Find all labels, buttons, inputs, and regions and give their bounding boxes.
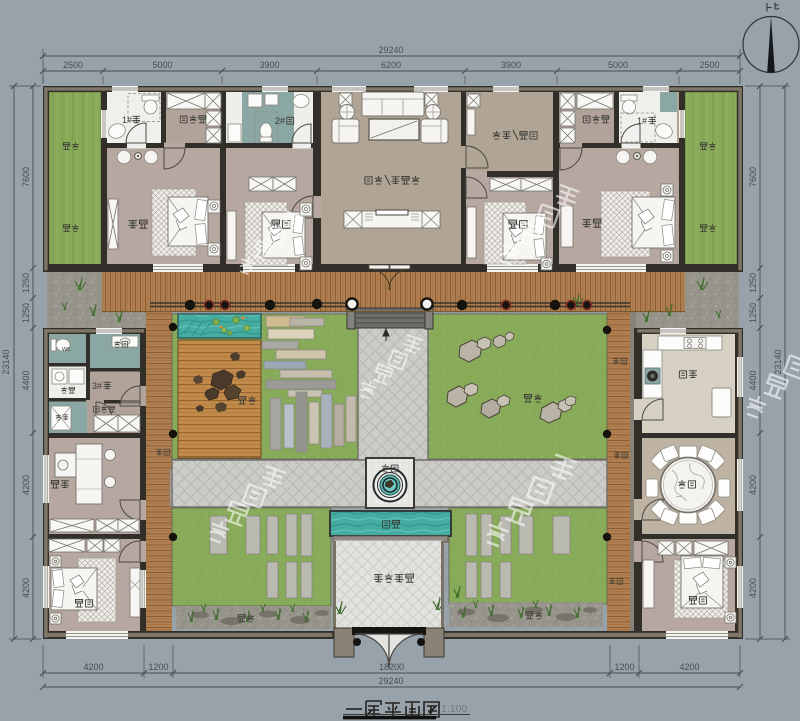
svg-text:1200: 1200 [148,662,168,672]
svg-text:4200: 4200 [748,578,758,598]
svg-text:3#: 3# [92,381,102,391]
svg-text:1200: 1200 [614,662,634,672]
svg-text:7600: 7600 [748,167,758,187]
svg-text:1250: 1250 [21,303,31,323]
svg-text:5000: 5000 [152,60,172,70]
svg-text:7600: 7600 [21,167,31,187]
svg-text:5000: 5000 [608,60,628,70]
svg-text:4200: 4200 [21,578,31,598]
svg-text:23140: 23140 [1,349,11,374]
svg-text:29240: 29240 [378,676,403,686]
svg-text:23140: 23140 [773,349,783,374]
svg-text:4200: 4200 [748,475,758,495]
svg-text:6200: 6200 [381,60,401,70]
svg-text:4400: 4400 [21,370,31,390]
svg-text:29240: 29240 [378,45,403,55]
svg-text:wc: wc [61,346,71,353]
svg-text:4200: 4200 [21,475,31,495]
svg-text:1250: 1250 [21,273,31,293]
svg-text:3900: 3900 [259,60,279,70]
svg-text:1250: 1250 [748,273,758,293]
svg-text:2500: 2500 [699,60,719,70]
svg-text:1#: 1# [637,116,647,126]
svg-text:2#: 2# [275,116,285,126]
svg-text:4200: 4200 [83,662,103,672]
svg-text:2500: 2500 [63,60,83,70]
svg-text:18200: 18200 [379,662,404,672]
svg-text:1250: 1250 [748,303,758,323]
svg-text:3900: 3900 [501,60,521,70]
svg-text:1:100: 1:100 [441,703,467,715]
svg-text:4200: 4200 [679,662,699,672]
svg-text:1#: 1# [122,115,132,125]
svg-text:4400: 4400 [748,370,758,390]
